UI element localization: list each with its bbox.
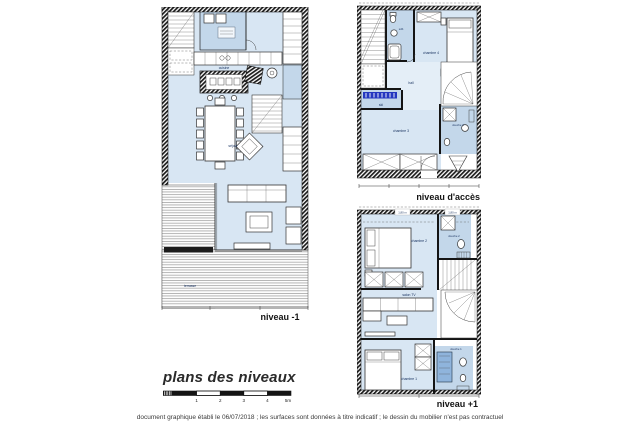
scale-tick-5: 5m: [285, 398, 292, 403]
floor-plan-niveau-plus-1: 1,80 m 1,80 m: [357, 204, 481, 398]
label-height2: 1,80 m: [448, 210, 457, 214]
dimension-line: [359, 394, 479, 398]
label-chambre3: chambre 3: [393, 129, 409, 133]
scale-tick-4: 4: [266, 398, 269, 403]
floor-plan-niveau-minus-1: cuisine séjour terrasse: [160, 7, 312, 310]
label-chambre2: chambre 2: [411, 239, 427, 243]
label-height1: 1,80 m: [398, 210, 407, 214]
dining-table: [197, 98, 244, 169]
label-sdb: sdb: [399, 27, 404, 31]
label-douche3: douche 3: [452, 123, 464, 127]
label-sejour: séjour: [228, 144, 238, 148]
label-salon-tv: salon TV: [402, 293, 416, 297]
dimension-line: [359, 184, 479, 188]
footer-note: document graphique établi le 06/07/2018 …: [0, 414, 640, 421]
level-label-niveau-acces: niveau d'accès: [406, 192, 480, 202]
scale-tick-3: 3: [243, 398, 246, 403]
label-chambre1: chambre 1: [401, 377, 417, 381]
label-douche2: douche 2: [448, 234, 460, 238]
label-chambre4: chambre 4: [423, 51, 439, 55]
label-ski: ski: [379, 103, 383, 107]
spiral-staircase: [441, 290, 477, 338]
staircase: [168, 12, 194, 75]
scale-tick-2: 2: [219, 398, 222, 403]
label-hall: hall: [408, 81, 414, 85]
plan-sheet: cuisine séjour terrasse: [0, 0, 640, 427]
page-title: plans des niveaux: [163, 369, 296, 386]
label-cuisine: cuisine: [219, 66, 230, 70]
ski-room: [363, 92, 397, 99]
spiral-staircase: [441, 62, 477, 106]
ski-rack: [363, 92, 397, 99]
scale-tick-1: 1: [195, 398, 198, 403]
label-terrasse: terrasse: [184, 284, 196, 288]
level-label-niveau-minus-1: niveau -1: [250, 312, 310, 322]
floor-plan-niveau-acces: sdb chambre 4 hall ski chambre 3 douche …: [357, 0, 481, 196]
level-label-niveau-plus-1: niveau +1: [428, 399, 478, 409]
exterior-staircase: [361, 10, 385, 88]
bedroom3-closets: [363, 154, 437, 170]
label-douche1: douche 1: [450, 347, 462, 351]
scale-bar: 1 2 3 4 5m: [163, 390, 293, 404]
